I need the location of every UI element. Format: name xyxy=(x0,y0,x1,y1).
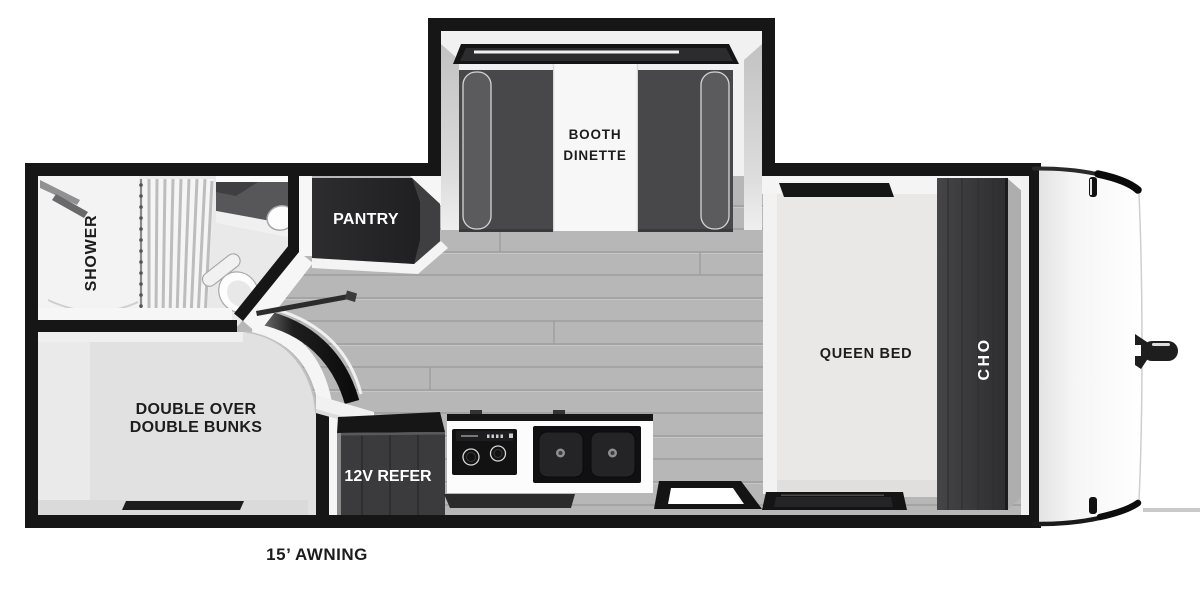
svg-text:QUEEN BED: QUEEN BED xyxy=(820,346,913,362)
svg-text:CHO: CHO xyxy=(976,337,993,380)
svg-text:BOOTH: BOOTH xyxy=(569,127,622,142)
svg-text:DOUBLE BUNKS: DOUBLE BUNKS xyxy=(130,419,263,436)
svg-text:12V REFER: 12V REFER xyxy=(344,468,432,485)
svg-text:DOUBLE OVER: DOUBLE OVER xyxy=(136,401,257,418)
svg-text:SHOWER: SHOWER xyxy=(83,215,100,292)
svg-text:15’ AWNING: 15’ AWNING xyxy=(266,545,368,564)
svg-text:DINETTE: DINETTE xyxy=(563,148,626,163)
svg-text:PANTRY: PANTRY xyxy=(333,211,399,228)
